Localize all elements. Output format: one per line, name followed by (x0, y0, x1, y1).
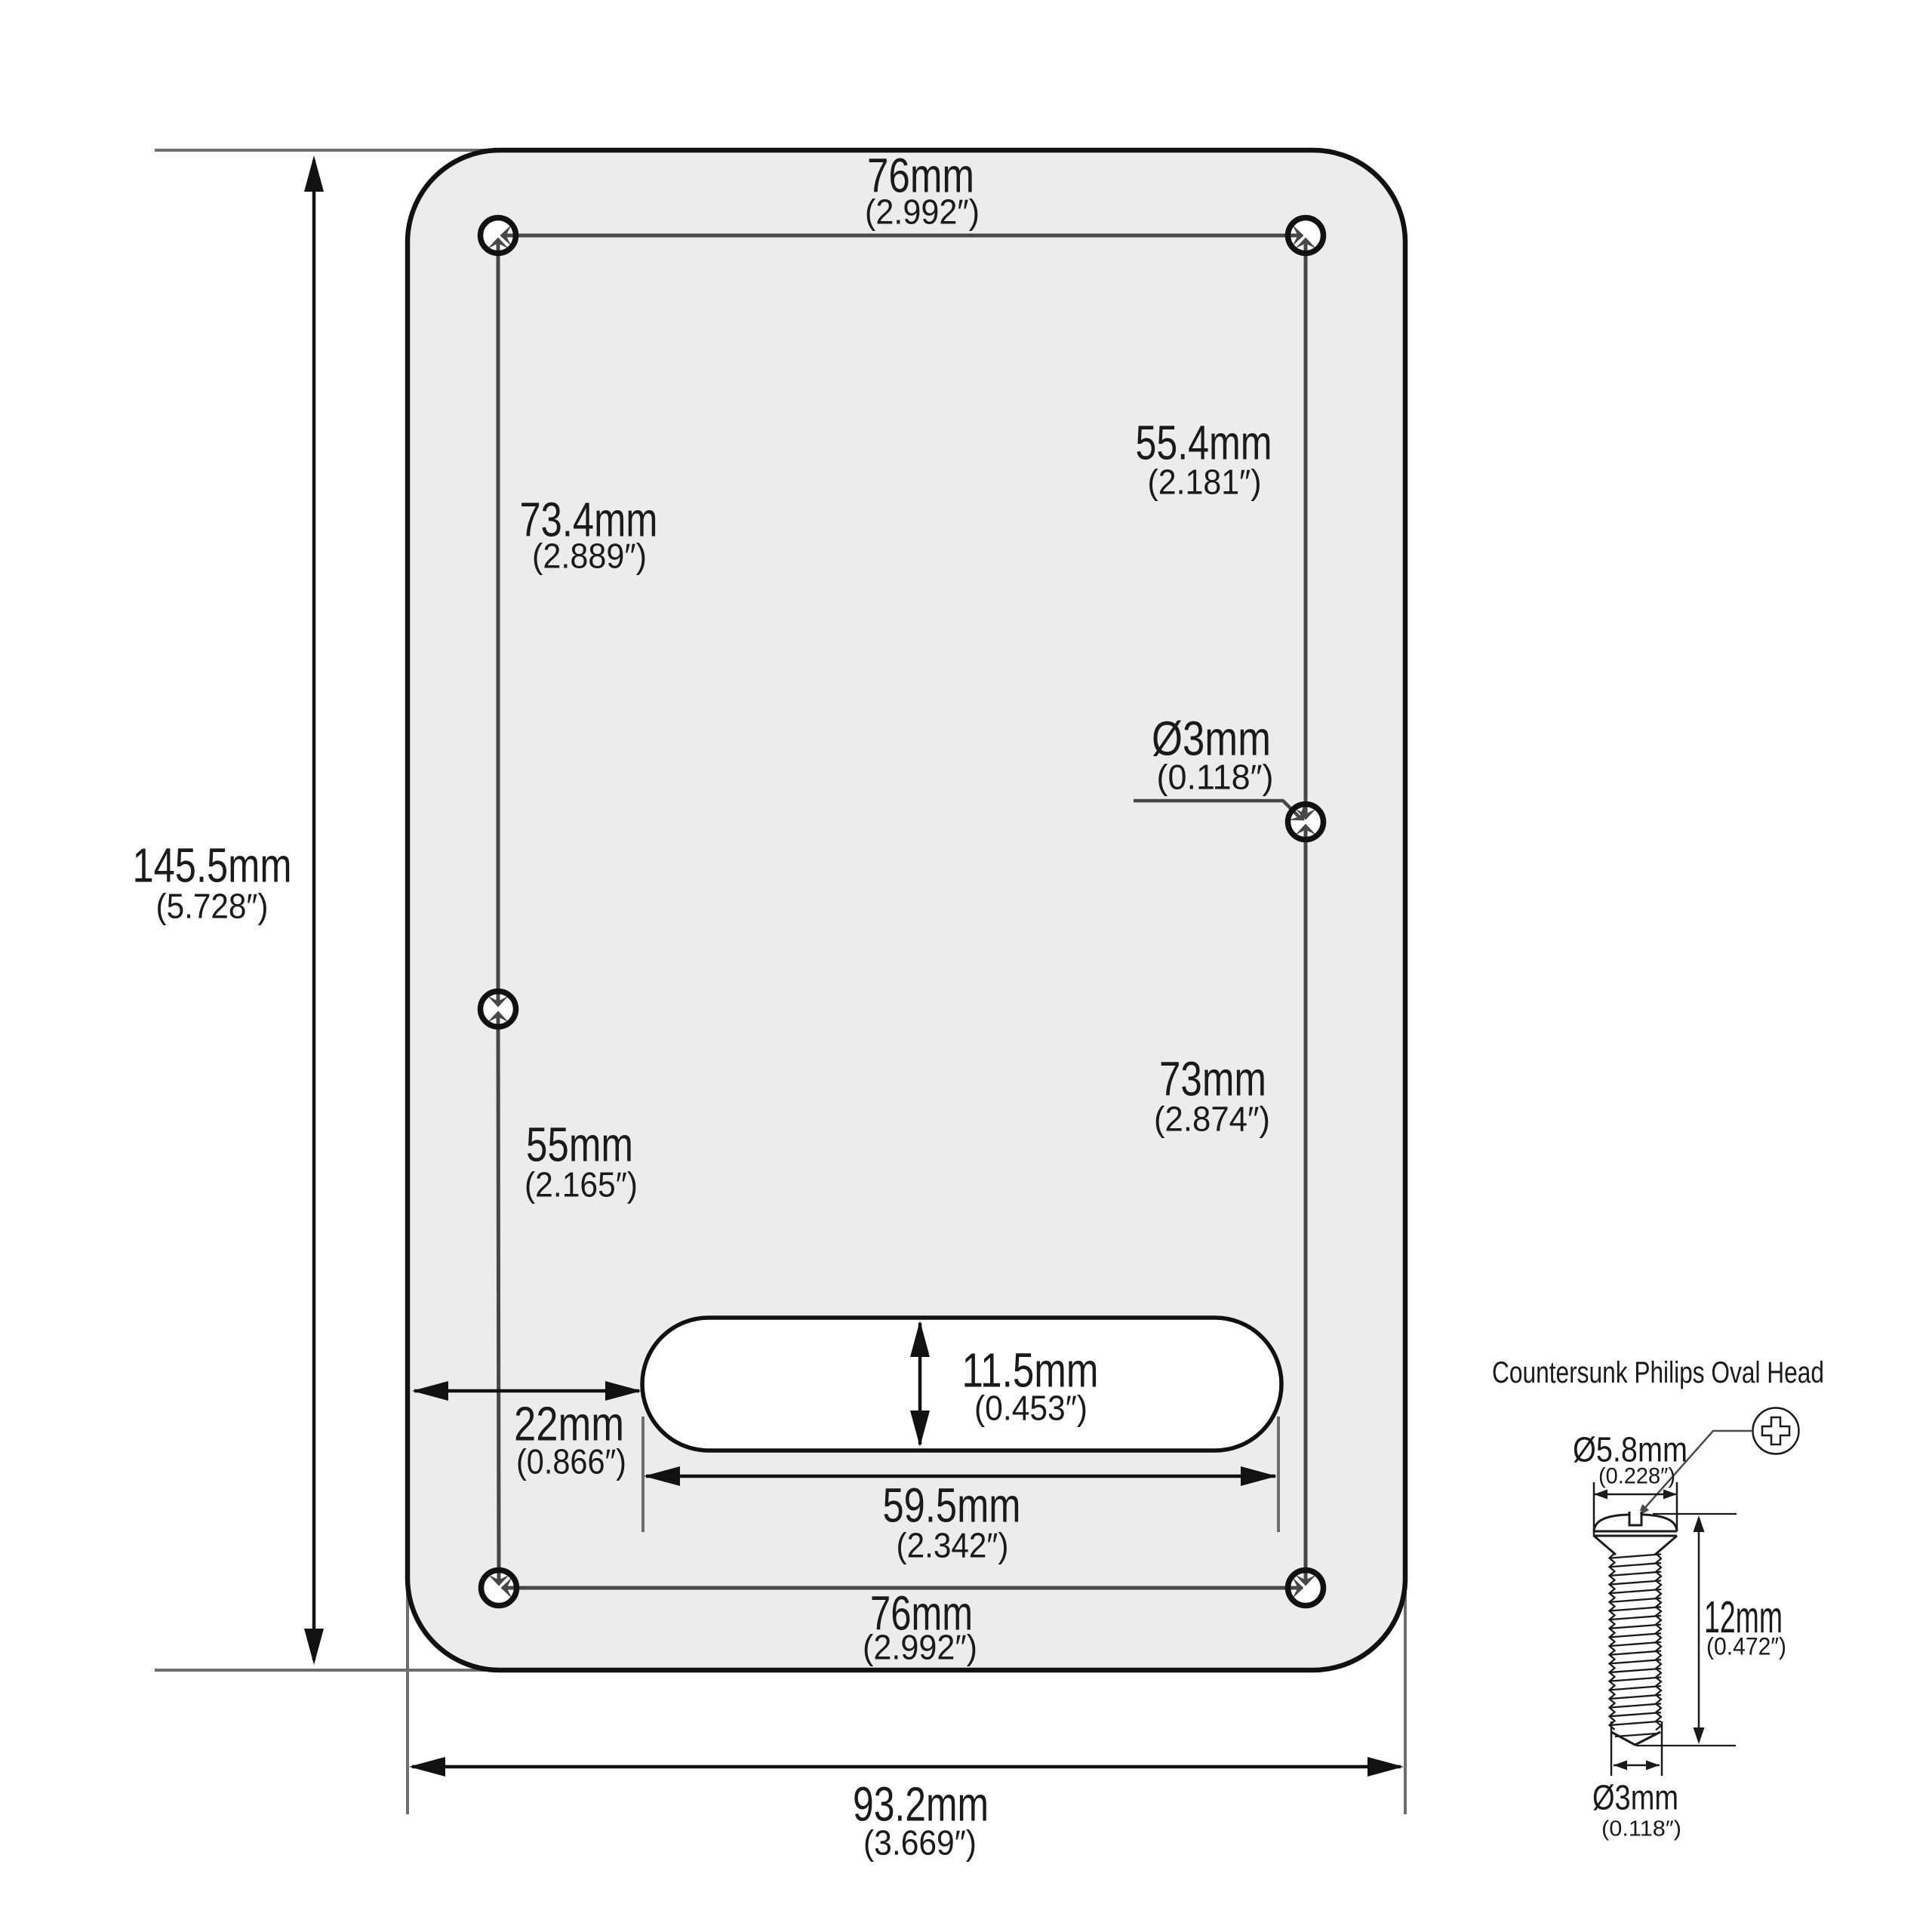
svg-text:(2.181″): (2.181″) (1148, 462, 1262, 501)
svg-text:(0.118″): (0.118″) (1157, 757, 1274, 796)
svg-text:Ø3mm: Ø3mm (1592, 1777, 1678, 1817)
svg-text:(0.228″): (0.228″) (1598, 1464, 1675, 1489)
svg-text:(2.889″): (2.889″) (532, 536, 647, 575)
svg-text:145.5mm: 145.5mm (133, 838, 292, 893)
svg-text:73mm: 73mm (1159, 1052, 1266, 1106)
svg-text:(0.866″): (0.866″) (516, 1441, 626, 1481)
svg-text:55mm: 55mm (526, 1118, 633, 1172)
svg-text:59.5mm: 59.5mm (883, 1478, 1021, 1533)
svg-text:(2.992″): (2.992″) (865, 192, 980, 231)
svg-text:(0.453″): (0.453″) (974, 1388, 1088, 1427)
svg-text:(2.874″): (2.874″) (1154, 1099, 1270, 1138)
svg-text:Countersunk Philips Oval Head: Countersunk Philips Oval Head (1492, 1356, 1824, 1389)
svg-text:(3.669″): (3.669″) (863, 1823, 977, 1862)
svg-text:(0.118″): (0.118″) (1601, 1817, 1681, 1841)
svg-text:(0.472″): (0.472″) (1706, 1632, 1786, 1660)
svg-text:Ø5.8mm: Ø5.8mm (1573, 1429, 1687, 1469)
svg-text:(5.728″): (5.728″) (156, 886, 269, 925)
svg-text:(2.342″): (2.342″) (897, 1525, 1009, 1564)
svg-text:(2.165″): (2.165″) (525, 1164, 638, 1204)
svg-text:(2.992″): (2.992″) (863, 1627, 977, 1666)
